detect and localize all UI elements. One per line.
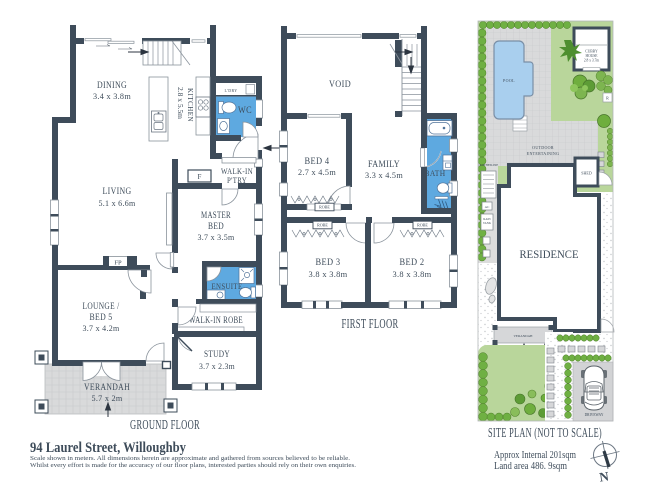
svg-text:LOUNGE /: LOUNGE / [83, 301, 120, 311]
svg-text:MASTER: MASTER [201, 210, 231, 220]
svg-text:BED 3: BED 3 [316, 257, 341, 267]
svg-text:3.7 x 2.3m: 3.7 x 2.3m [199, 361, 235, 371]
svg-text:FIRST FLOOR: FIRST FLOOR [342, 316, 399, 331]
svg-text:3.8 x 3.8m: 3.8 x 3.8m [309, 269, 348, 279]
svg-text:CLOTHESLINE: CLOTHESLINE [478, 163, 498, 167]
svg-text:3.3 x 4.5m: 3.3 x 4.5m [365, 170, 403, 180]
svg-text:VERANDAH: VERANDAH [84, 382, 130, 392]
svg-text:Scale shown in meters. All di: Scale shown in meters. All dimensions he… [30, 455, 351, 462]
svg-text:DINING: DINING [97, 80, 127, 90]
svg-text:OUTDOOR: OUTDOOR [532, 145, 554, 150]
svg-text:GROUND FLOOR: GROUND FLOOR [130, 417, 200, 432]
svg-text:POOL: POOL [503, 78, 515, 83]
svg-text:Approx Internal 201sqm: Approx Internal 201sqm [494, 450, 576, 461]
svg-text:Land area 486. 9sqm: Land area 486. 9sqm [494, 461, 567, 472]
svg-text:F: F [198, 173, 202, 181]
svg-text:ROBE: ROBE [319, 205, 330, 210]
svg-text:ENTERTAINING: ENTERTAINING [527, 151, 560, 156]
svg-text:BATH: BATH [425, 169, 446, 178]
svg-text:DRIVEWAY: DRIVEWAY [585, 413, 604, 417]
svg-text:BED 2: BED 2 [400, 257, 425, 267]
svg-text:WALK-IN ROBE: WALK-IN ROBE [189, 315, 243, 325]
svg-text:5.1 x 6.6m: 5.1 x 6.6m [99, 198, 136, 208]
svg-text:3.7 x 3.5m: 3.7 x 3.5m [198, 232, 235, 242]
svg-text:2.8 x 3.7m: 2.8 x 3.7m [584, 59, 600, 63]
svg-text:ENSUITE: ENSUITE [212, 282, 243, 291]
svg-text:WC: WC [238, 105, 252, 115]
svg-text:R: R [606, 96, 609, 101]
svg-text:VOID: VOID [329, 79, 351, 89]
svg-text:3.7 x 4.2m: 3.7 x 4.2m [83, 323, 120, 333]
svg-text:STUDY: STUDY [204, 349, 230, 359]
svg-text:FP: FP [114, 260, 122, 267]
svg-text:L'DRY: L'DRY [225, 88, 238, 93]
svg-text:HOUSE: HOUSE [586, 54, 599, 58]
svg-text:BED: BED [208, 221, 224, 231]
svg-text:TANK: TANK [483, 221, 492, 225]
svg-text:3.4 x 3.8m: 3.4 x 3.8m [93, 91, 131, 101]
svg-text:RESIDENCE: RESIDENCE [520, 247, 579, 261]
svg-text:SITE PLAN (NOT TO SCALE): SITE PLAN (NOT TO SCALE) [488, 425, 602, 440]
svg-text:94 Laurel Street, Willoughby: 94 Laurel Street, Willoughby [30, 440, 187, 456]
svg-text:3.8 x 3.8m: 3.8 x 3.8m [393, 269, 432, 279]
svg-text:FAMILY: FAMILY [368, 159, 400, 169]
svg-text:WALK-IN: WALK-IN [221, 167, 253, 176]
svg-text:2.7 x 4.5m: 2.7 x 4.5m [298, 167, 336, 177]
svg-text:CUBBY: CUBBY [585, 50, 598, 54]
svg-text:ROBE: ROBE [317, 223, 328, 228]
svg-text:VERANDAH: VERANDAH [513, 334, 533, 338]
svg-text:BED 5: BED 5 [90, 312, 113, 322]
svg-text:2.8 x 5.5m: 2.8 x 5.5m [176, 87, 184, 119]
svg-text:KITCHEN: KITCHEN [186, 88, 194, 122]
svg-text:Whilst every effort is made fo: Whilst every effort is made for the accu… [30, 462, 357, 469]
svg-text:5.7 x 2m: 5.7 x 2m [92, 393, 123, 403]
svg-text:AC: AC [485, 205, 490, 209]
svg-text:SHED: SHED [581, 171, 592, 176]
svg-text:ROBE: ROBE [417, 223, 428, 228]
svg-text:BED 4: BED 4 [305, 156, 330, 166]
svg-text:LIVING: LIVING [103, 186, 132, 196]
